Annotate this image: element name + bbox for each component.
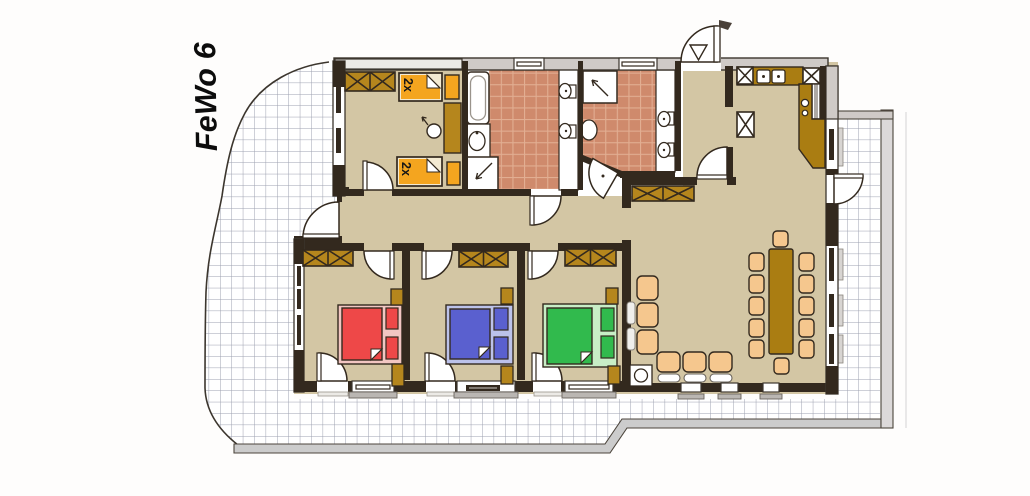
svg-text:FeWo 6: FeWo 6 xyxy=(188,41,224,152)
svg-text:2x: 2x xyxy=(401,78,415,92)
svg-text:2x: 2x xyxy=(399,162,413,176)
